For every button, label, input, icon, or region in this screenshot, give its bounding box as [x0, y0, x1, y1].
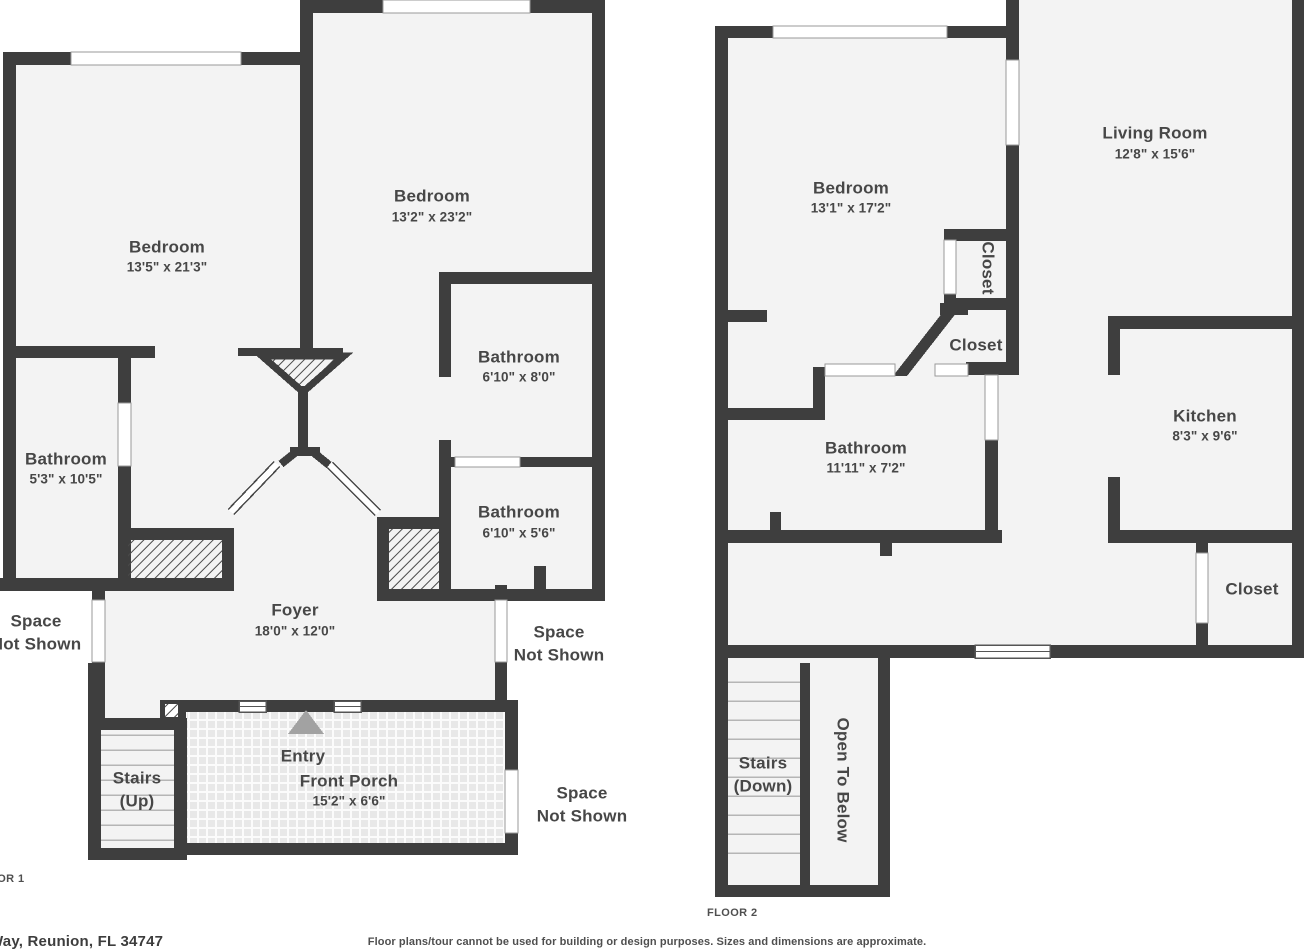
room-dims-kitchen: 8'3" x 9'6"	[1172, 429, 1237, 443]
room-label-kitchen: Kitchen	[1173, 408, 1237, 425]
stairs-down-label: Stairs	[739, 755, 787, 772]
room-label-bathroom-left: Bathroom	[25, 451, 107, 468]
door-gap	[455, 457, 520, 467]
room-dims-bathroom-low: 6'10" x 5'6"	[483, 526, 556, 540]
door-gap	[825, 364, 895, 376]
door-gap	[118, 403, 131, 466]
space-not-shown-left2: Not Shown	[0, 636, 81, 653]
stairs-down-label2: (Down)	[734, 778, 793, 795]
door-gap	[505, 770, 518, 833]
room-label-bedroom2: Bedroom	[813, 180, 889, 197]
floorplan-drawing	[0, 0, 1304, 950]
room-label-entry: Entry	[281, 748, 325, 765]
porch-corner-hatch	[165, 704, 178, 717]
room-dims-foyer: 18'0" x 12'0"	[255, 624, 336, 638]
window	[383, 0, 530, 13]
room-label-bathroom-mid: Bathroom	[478, 349, 560, 366]
window	[773, 26, 947, 38]
room-dims-bathroom-left: 5'3" x 10'5"	[30, 472, 103, 486]
door-gap	[92, 600, 105, 662]
closet-mid-label: Closet	[949, 337, 1002, 354]
hatched-box-left	[128, 540, 222, 578]
room-label-front-porch: Front Porch	[300, 773, 399, 790]
window	[1006, 60, 1019, 145]
door-gap	[495, 600, 507, 662]
space-not-shown-right2: Not Shown	[514, 647, 605, 664]
room-dims-bathroom-mid: 6'10" x 8'0"	[483, 370, 556, 384]
door-gap	[985, 375, 998, 440]
stairs-up-label2: (Up)	[120, 793, 155, 810]
hatched-box-right	[389, 529, 439, 589]
floor1-caption: FLOOR 1	[0, 874, 24, 885]
open-to-below-label: Open To Below	[835, 717, 852, 842]
room-label-foyer: Foyer	[271, 602, 318, 619]
door-gap	[935, 364, 968, 376]
space-not-shown-right: Space	[533, 624, 584, 641]
door-gap	[944, 240, 956, 294]
room-label-bathroom2: Bathroom	[825, 440, 907, 457]
space-not-shown-porch2: Not Shown	[537, 808, 628, 825]
room-label-living-room: Living Room	[1102, 125, 1207, 142]
closet-low-label: Closet	[1225, 581, 1278, 598]
floorplan-page: Bedroom 13'5" x 21'3" Bedroom 13'2" x 23…	[0, 0, 1304, 950]
room-dims-bedroom2: 13'1" x 17'2"	[811, 201, 892, 215]
floor1-plan	[0, 0, 605, 860]
room-label-bedroom-left: Bedroom	[129, 239, 205, 256]
floor2-plan	[715, 0, 1304, 897]
room-dims-bedroom-left: 13'5" x 21'3"	[127, 260, 208, 274]
closet-tall-label: Closet	[980, 241, 997, 294]
floor2-caption: FLOOR 2	[707, 908, 757, 919]
room-dims-living-room: 12'8" x 15'6"	[1115, 147, 1196, 161]
door-gap	[1196, 553, 1208, 623]
space-not-shown-porch: Space	[556, 785, 607, 802]
room-dims-bedroom-right: 13'2" x 23'2"	[392, 210, 473, 224]
property-address: Way, Reunion, FL 34747	[0, 934, 163, 949]
room-dims-bathroom2: 11'11" x 7'2"	[826, 461, 905, 475]
room-label-bedroom-right: Bedroom	[394, 188, 470, 205]
space-not-shown-left: Space	[10, 613, 61, 630]
window	[71, 52, 241, 65]
disclaimer-text: Floor plans/tour cannot be used for buil…	[368, 937, 926, 948]
stairs-up-label: Stairs	[113, 770, 161, 787]
room-label-bathroom-low: Bathroom	[478, 504, 560, 521]
room-dims-front-porch: 15'2" x 6'6"	[313, 794, 386, 808]
